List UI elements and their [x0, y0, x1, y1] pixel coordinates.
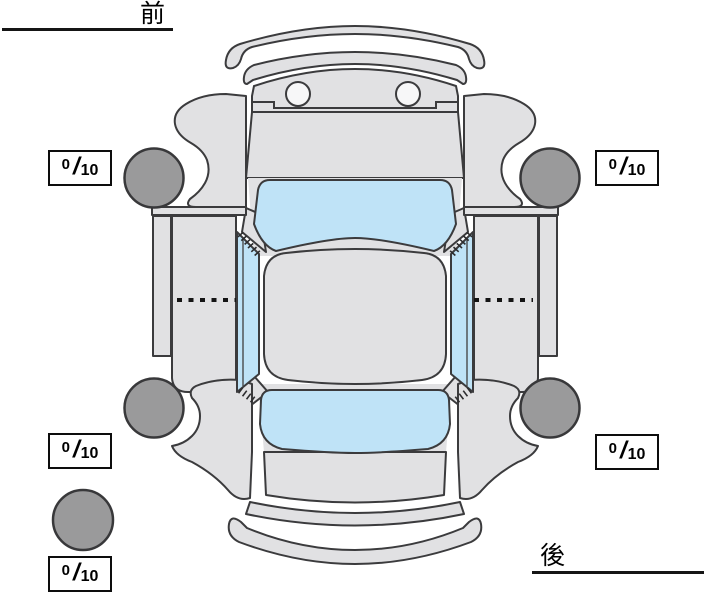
headlamp-washer-right-icon [396, 82, 420, 106]
side-window-right [451, 232, 473, 392]
front-left-tire-icon [125, 149, 184, 208]
tire-rating-max: 10 [628, 446, 646, 464]
front-right-tire-icon [521, 149, 580, 208]
headlamp-washer-left-icon [286, 82, 310, 106]
vehicle-condition-diagram: 前 後 0 / 10 0 / 10 0 / 10 0 / 10 0 / 10 [0, 0, 711, 600]
cowl-step-left [152, 207, 246, 215]
tire-rating-value: 0 [609, 440, 617, 457]
tire-rating-max: 10 [81, 162, 99, 180]
tire-rating-value: 0 [609, 156, 617, 173]
front-orientation-label: 前 [140, 2, 165, 27]
tire-rating-max: 10 [81, 568, 99, 586]
tire-rating-separator: / [73, 436, 80, 464]
tire-rating-value: 0 [62, 439, 70, 456]
front-fender-left [175, 94, 246, 207]
cowl-step-right [464, 207, 558, 215]
side-window-left [237, 232, 259, 392]
tire-rating-max: 10 [81, 445, 99, 463]
rocker-panel-left [153, 216, 171, 356]
tire-rating-separator: / [620, 153, 627, 181]
tire-rating-separator: / [73, 153, 80, 181]
front-panel [252, 69, 458, 112]
tire-rating-spare: 0 / 10 [48, 556, 112, 592]
rear-orientation-label: 後 [540, 544, 565, 569]
rear-quarter-left [172, 380, 252, 499]
rear-window [260, 390, 450, 453]
rear-divider-line [532, 571, 704, 574]
hood-panel [246, 112, 464, 178]
trunk-lip [246, 502, 464, 526]
door-panel-left [172, 216, 236, 392]
door-panel-right [474, 216, 538, 392]
roof-panel [264, 249, 446, 384]
spare-tire-icon [53, 490, 113, 550]
tire-rating-separator: / [620, 437, 627, 465]
car-top-view [0, 0, 711, 600]
front-divider-line [2, 28, 173, 31]
tire-rating-separator: / [73, 559, 80, 587]
tire-rating-rear-right: 0 / 10 [595, 434, 659, 470]
tire-rating-front-left: 0 / 10 [48, 150, 112, 186]
rear-right-tire-icon [521, 379, 580, 438]
tire-rating-rear-left: 0 / 10 [48, 433, 112, 469]
tire-rating-max: 10 [628, 162, 646, 180]
rocker-panel-right [539, 216, 557, 356]
tire-rating-front-right: 0 / 10 [595, 150, 659, 186]
tire-rating-value: 0 [62, 562, 70, 579]
rear-left-tire-icon [125, 379, 184, 438]
tire-rating-value: 0 [62, 156, 70, 173]
trunk-panel [264, 452, 446, 503]
